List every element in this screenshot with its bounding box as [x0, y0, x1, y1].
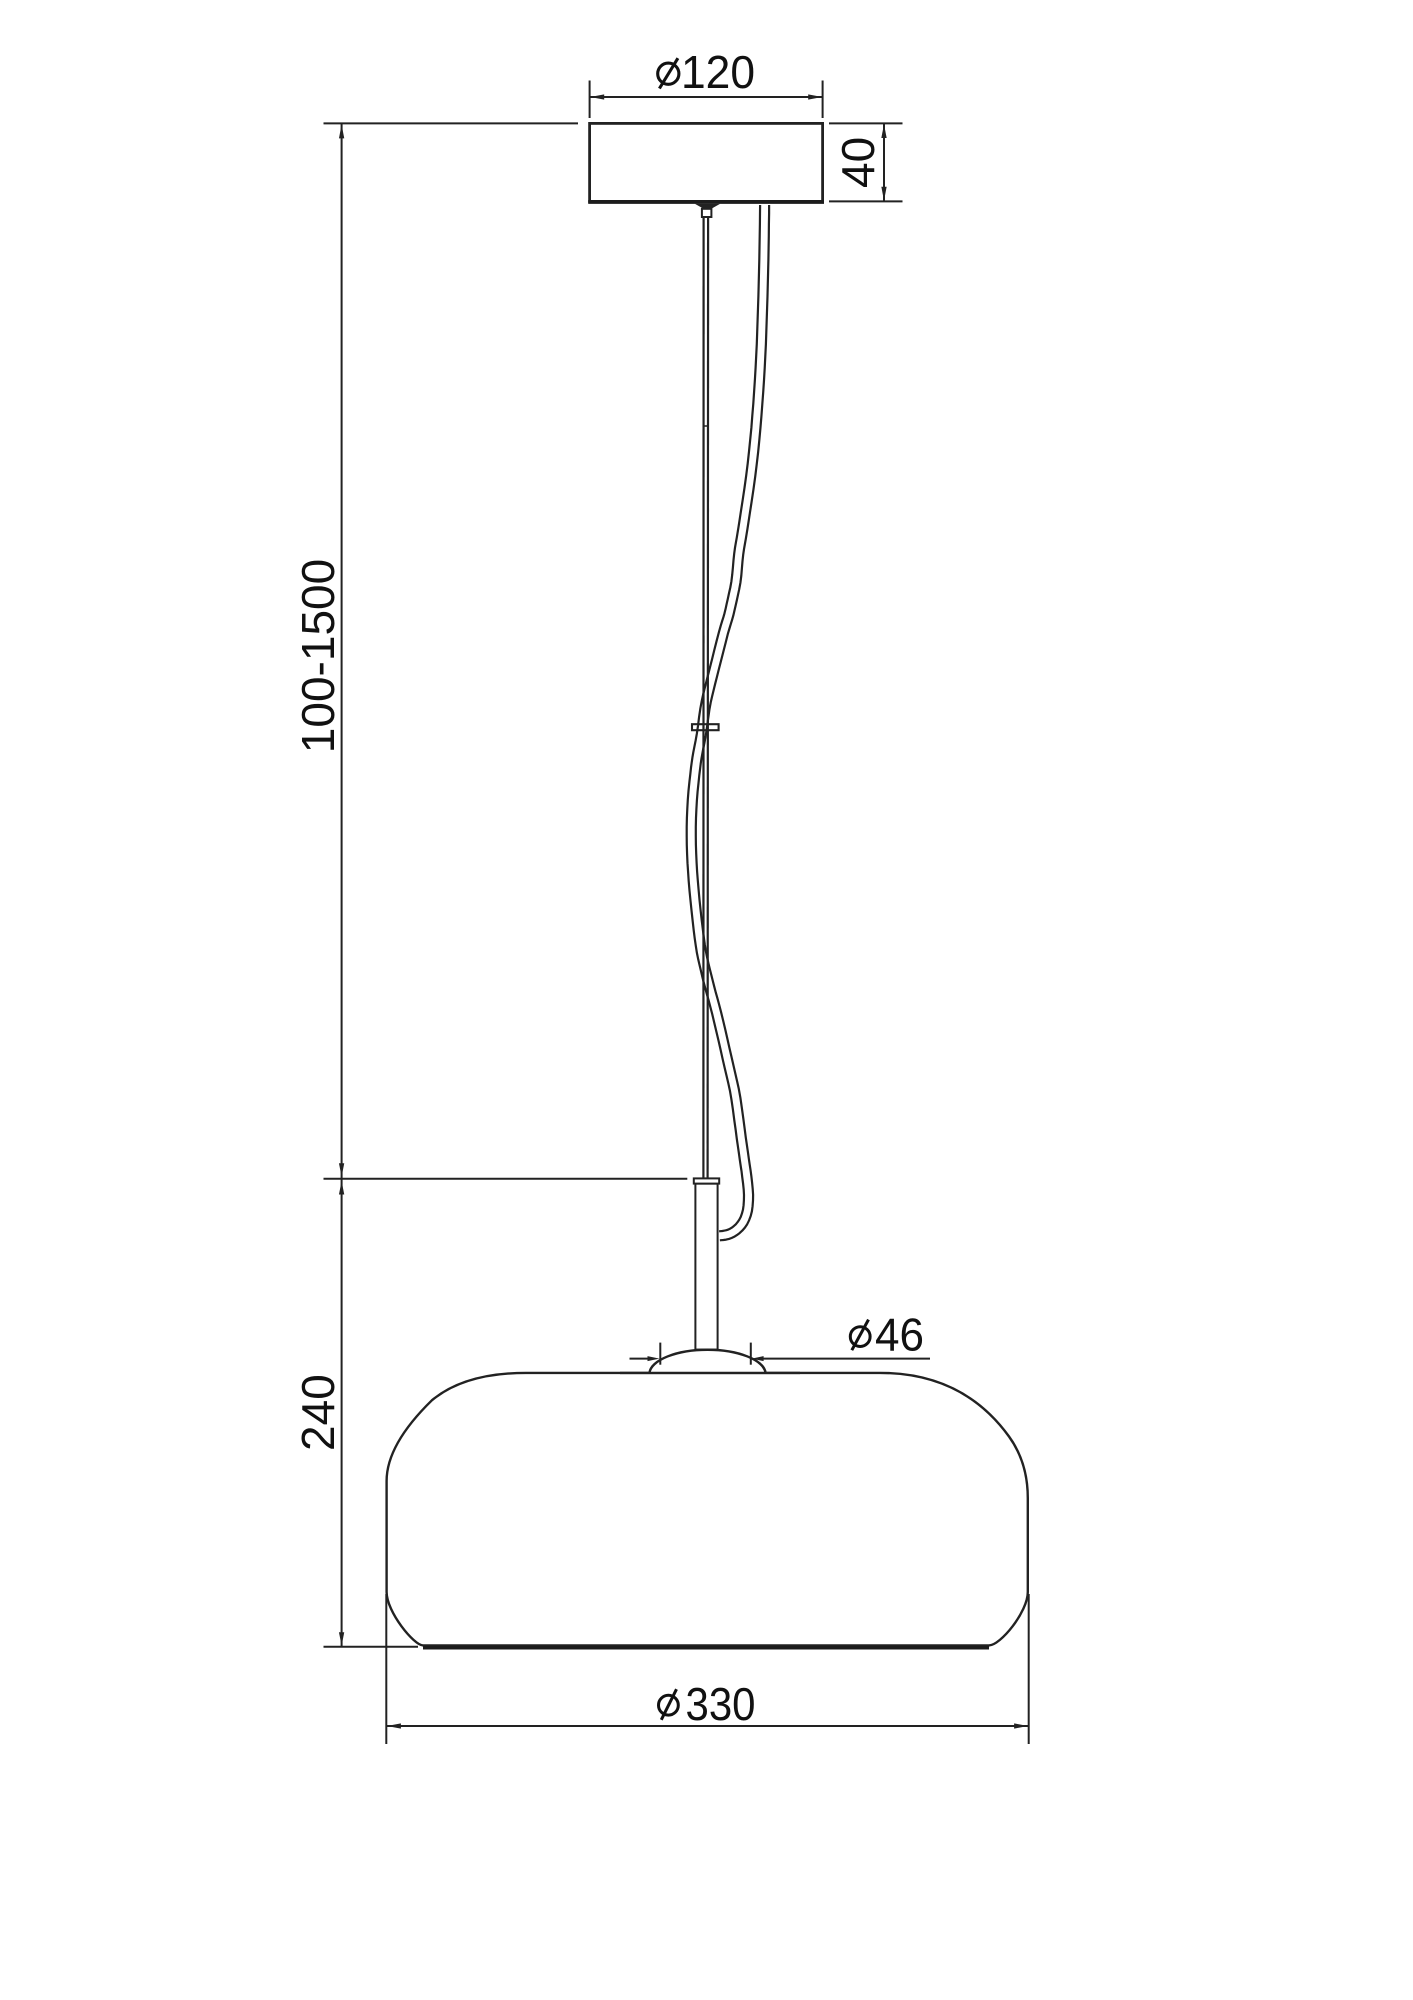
- svg-text:46: 46: [875, 1308, 924, 1360]
- svg-text:330: 330: [686, 1678, 756, 1730]
- svg-text:240: 240: [292, 1374, 344, 1451]
- svg-text:40: 40: [832, 137, 884, 188]
- svg-text:100-1500: 100-1500: [292, 559, 344, 753]
- svg-text:120: 120: [681, 46, 755, 98]
